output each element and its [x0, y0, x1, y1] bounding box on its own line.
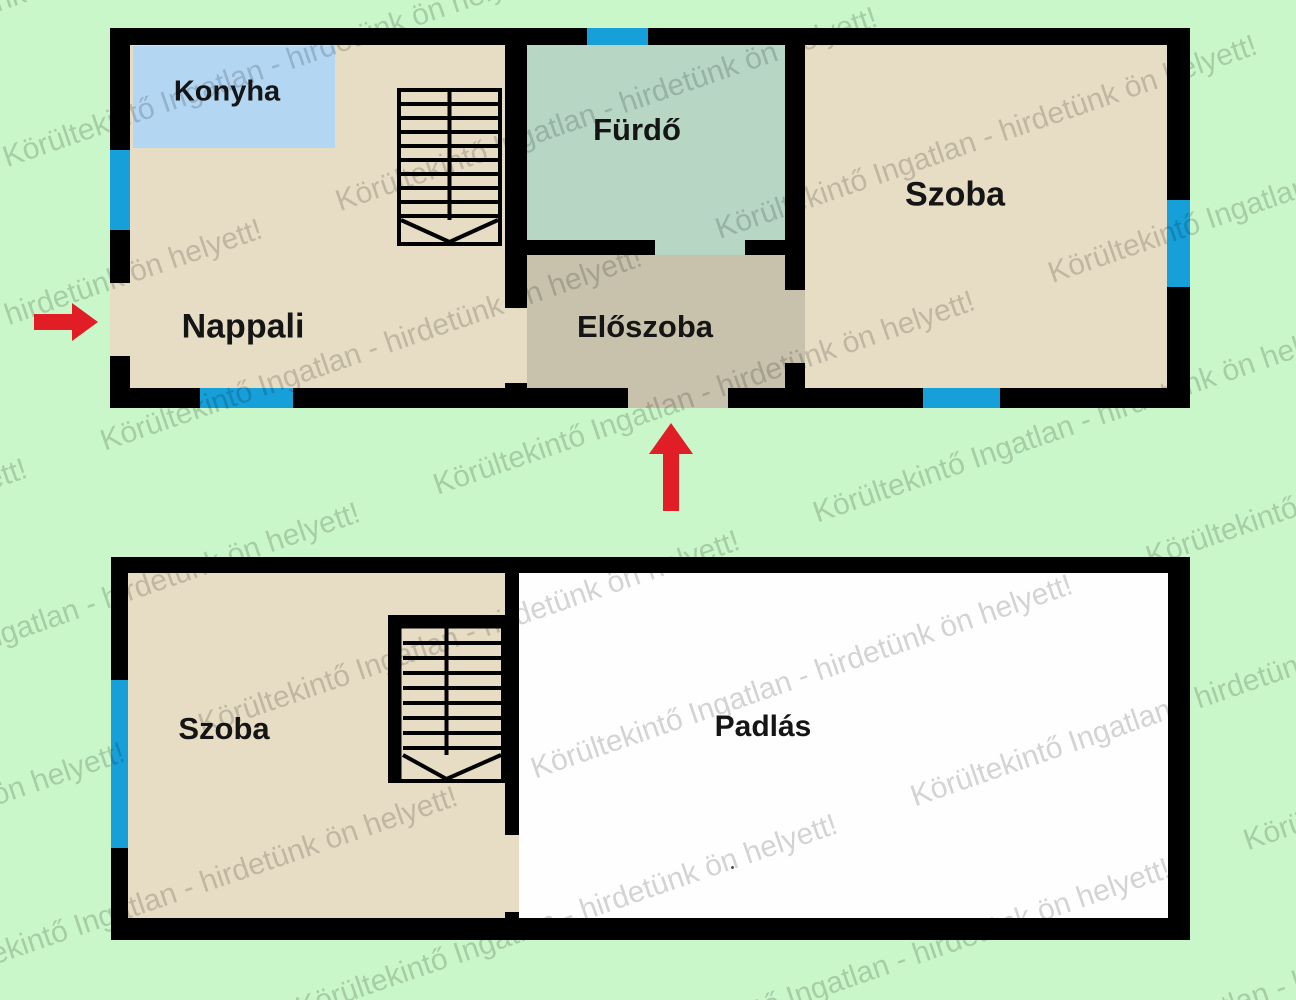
watermark-text: Körültekintő Ingatlan - hirdetünk ön hel… [1239, 640, 1296, 858]
window-upper-bottom-szoba [923, 388, 1000, 408]
lower-floor-plan: Szoba Padlás [111, 557, 1190, 940]
room-label-szoba-upper: Szoba [905, 176, 1005, 215]
door-opening-nappali-eloszoba [505, 308, 527, 383]
room-label-furdo: Fürdő [593, 112, 681, 148]
room-label-szoba-lower: Szoba [178, 711, 269, 747]
door-opening-szoba-padlas [505, 835, 519, 912]
staircase-lower-icon [388, 615, 505, 783]
window-upper-top [587, 28, 648, 45]
entrance-arrow-right-icon [34, 303, 98, 341]
upper-floor-plan: Konyha Fürdő Szoba Nappali Előszoba [110, 28, 1190, 408]
entrance-arrow-up-icon [649, 423, 693, 511]
door-opening-eloszoba-szoba [785, 290, 805, 363]
room-szoba-upper [805, 45, 1167, 388]
room-label-nappali: Nappali [182, 308, 305, 347]
staircase-upper-icon [397, 88, 502, 246]
room-label-eloszoba: Előszoba [577, 309, 713, 345]
window-lower-left [111, 680, 128, 848]
watermark-text: Körültekintő Ingatlan - hirdetünk ön hel… [0, 736, 129, 954]
door-opening-entrance-left [110, 283, 130, 356]
stray-mark [731, 866, 734, 869]
window-upper-left [110, 150, 130, 230]
floor-plan-image: Konyha Fürdő Szoba Nappali Előszoba [0, 0, 1296, 1000]
room-label-padlas: Padlás [715, 710, 812, 744]
window-upper-right [1167, 200, 1190, 287]
room-label-konyha: Konyha [174, 76, 280, 109]
watermark-text: Körültekintő Ingatlan - hirdetünk ön hel… [0, 452, 32, 670]
watermark-text: Körültekintő Ingatlan - hirdetünk ön hel… [946, 0, 1296, 7]
window-upper-bottom-nappali [200, 388, 293, 408]
door-opening-entrance-bottom [628, 388, 728, 408]
door-opening-furdo-eloszoba [655, 240, 745, 255]
room-padlas [519, 573, 1168, 918]
